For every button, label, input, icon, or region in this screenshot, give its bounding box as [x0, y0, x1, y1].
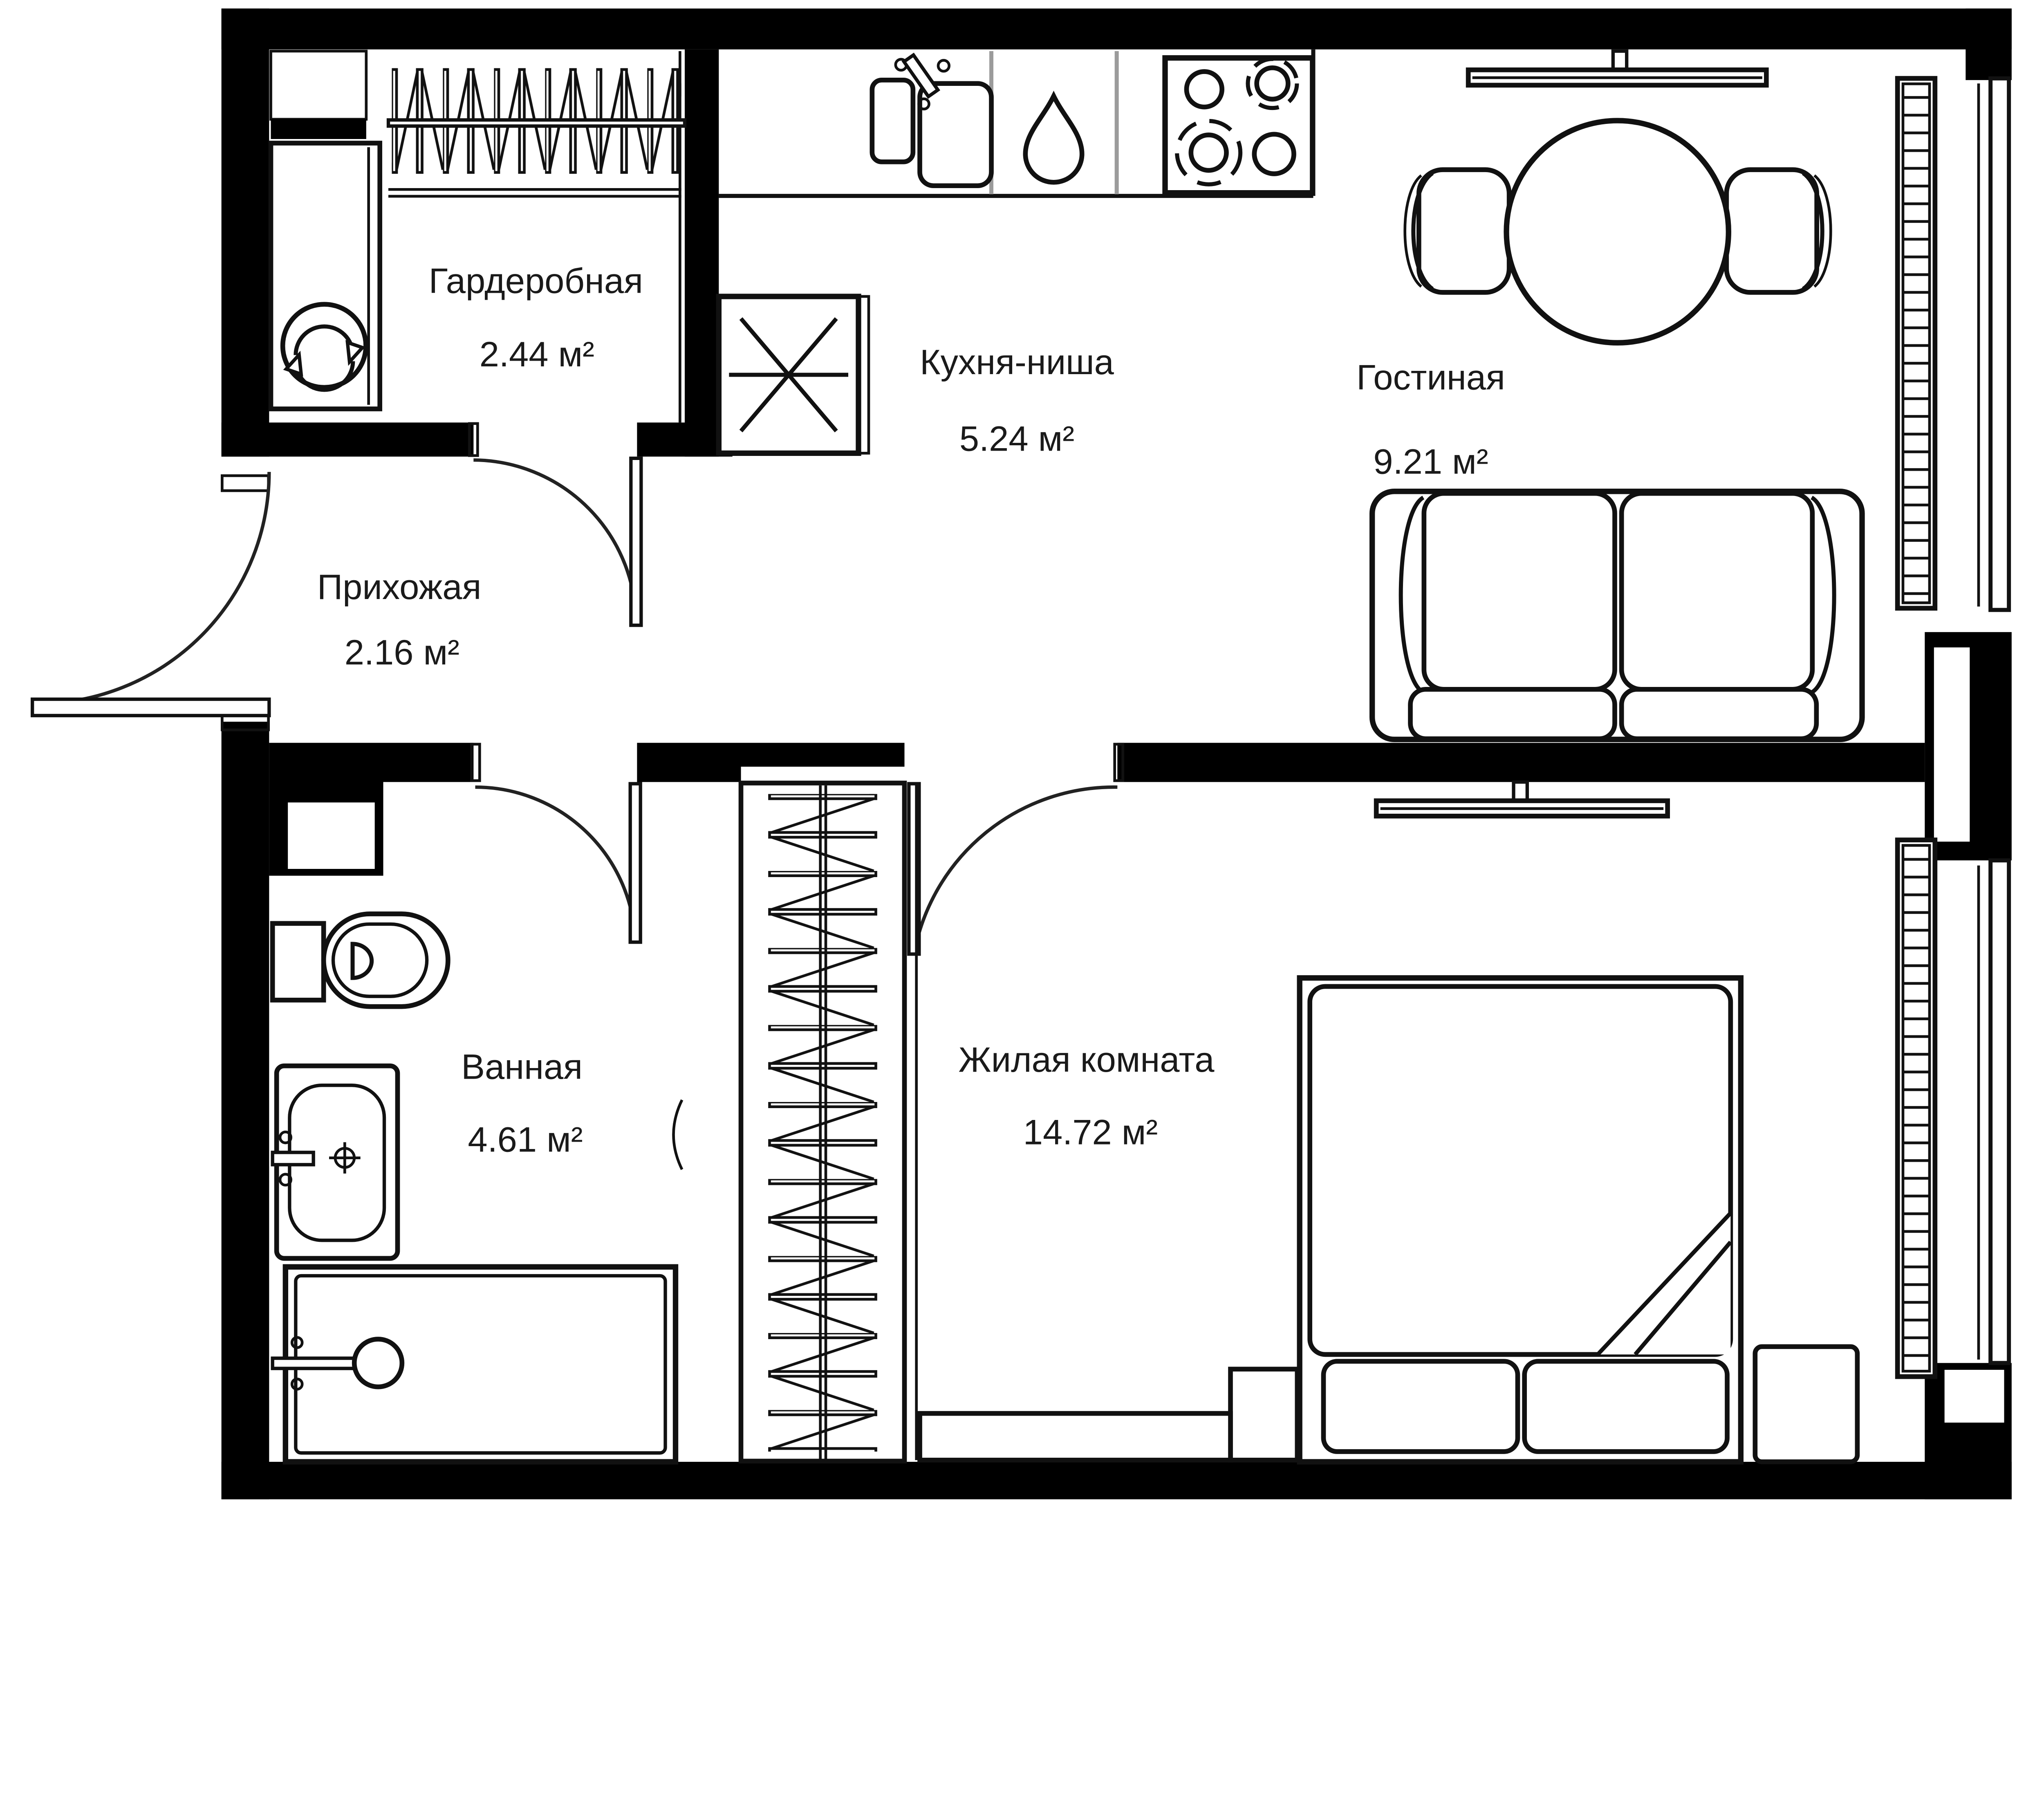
bathroom-door: [475, 784, 641, 942]
bathtub-icon: [273, 1267, 676, 1462]
stove-icon: [1165, 58, 1313, 193]
door-arc: [914, 787, 1117, 954]
wall-wardrobe-kitchen: [685, 49, 719, 457]
room-label-kitchen: Кухня-ниша: [920, 343, 1114, 382]
floor-plan: Гардеробная 2.44 м² Кухня-ниша 5.24 м² Г…: [0, 0, 2044, 1517]
floor-plan-page: Гардеробная 2.44 м² Кухня-ниша 5.24 м² Г…: [0, 0, 2044, 1517]
door-arc: [38, 472, 269, 704]
bed-icon: [1300, 978, 1741, 1462]
bathroom: [273, 914, 682, 1462]
washbasin-icon: [273, 1066, 398, 1259]
room-area-living: 9.21 м²: [1373, 442, 1488, 481]
burner: [1186, 72, 1222, 107]
window-bedroom: [1990, 860, 2009, 1363]
bedroom-door: [909, 784, 1117, 954]
nightstand: [1230, 1369, 1297, 1460]
water-drop-icon: [1025, 96, 1082, 182]
tv-icon: [1468, 51, 1766, 85]
wall-left-lower: [222, 722, 269, 1499]
sofa-seat: [1424, 494, 1615, 689]
washing-machine-icon: [271, 143, 380, 409]
jamb-entrance-top: [222, 476, 268, 491]
room-label-bathroom: Ванная: [461, 1047, 583, 1086]
shaft-box: [271, 51, 366, 119]
shower-head-icon: [354, 1339, 402, 1387]
room-label-hallway: Прихожая: [317, 568, 482, 607]
pillow: [1323, 1361, 1517, 1452]
shaft-bottom-right: [1945, 1370, 2004, 1423]
door-leaf: [32, 699, 269, 716]
room-area-wardrobe: 2.44 м²: [480, 335, 594, 374]
tap: [273, 1152, 314, 1165]
shaft-mid-right: [1934, 647, 1970, 842]
closet-strip: [741, 783, 917, 1461]
chair-icon: [1405, 170, 1509, 292]
pillow: [1524, 1361, 1727, 1452]
dresser: [920, 1414, 1230, 1460]
shaft-bathroom: [288, 802, 374, 868]
jamb-wardrobe: [469, 424, 477, 456]
kitchen-sink-icon: [872, 55, 991, 186]
burner: [1254, 134, 1294, 174]
dining-set: [1405, 121, 1831, 343]
door-arc: [473, 460, 636, 625]
closet-hangers-icon: [768, 794, 877, 1452]
door-arc: [475, 787, 636, 942]
room-area-bathroom: 4.61 м²: [468, 1120, 583, 1160]
room-label-bedroom: Жилая комната: [959, 1040, 1215, 1079]
shower-arm: [273, 1358, 359, 1369]
rail-bar: [388, 120, 685, 126]
hanger-rail-icon: [388, 68, 685, 196]
window-living: [1990, 79, 2009, 610]
wall-divider-middle: [637, 743, 741, 782]
wall-left-upper: [222, 9, 269, 457]
sofa-front-cushion: [1622, 689, 1817, 739]
door-leaf: [631, 458, 641, 625]
wall-top: [222, 9, 2012, 49]
wardrobe-room: [271, 51, 685, 422]
wall-bottom: [222, 1462, 2012, 1499]
door-leaf: [630, 784, 641, 942]
kitchen-area: [719, 49, 1313, 453]
room-area-bedroom: 14.72 м²: [1023, 1113, 1158, 1152]
room-label-wardrobe: Гардеробная: [429, 262, 643, 301]
wall-over-closet: [741, 743, 905, 767]
wall-divider-left: [269, 743, 473, 782]
dining-table-icon: [1506, 121, 1728, 343]
sofa-icon: [1372, 491, 1862, 740]
wardrobe-door: [473, 458, 641, 625]
shaft-band: [271, 119, 366, 139]
radiator-bedroom-icon: [1898, 840, 1935, 1376]
radiator-living-icon: [1898, 79, 1935, 608]
toilet-icon: [273, 914, 448, 1007]
wall-top-right-block: [1966, 9, 2012, 80]
room-area-kitchen: 5.24 м²: [959, 419, 1074, 458]
room-label-living: Гостиная: [1356, 358, 1505, 397]
sofa-seat: [1622, 494, 1813, 689]
towel-rail-icon: [674, 1100, 682, 1169]
doors: [32, 458, 1117, 954]
wall-divider-right: [1117, 743, 1925, 782]
room-area-hallway: 2.16 м²: [345, 633, 459, 672]
sofa-front-cushion: [1410, 689, 1615, 739]
jamb-bathroom: [471, 744, 480, 781]
vent-fan-icon: [719, 296, 869, 453]
nightstand: [1755, 1346, 1857, 1462]
chair-icon: [1726, 170, 1831, 292]
tv-icon: [1376, 782, 1667, 816]
entrance-door: [32, 472, 269, 716]
wall-wardrobe-bottom-left: [222, 422, 474, 456]
